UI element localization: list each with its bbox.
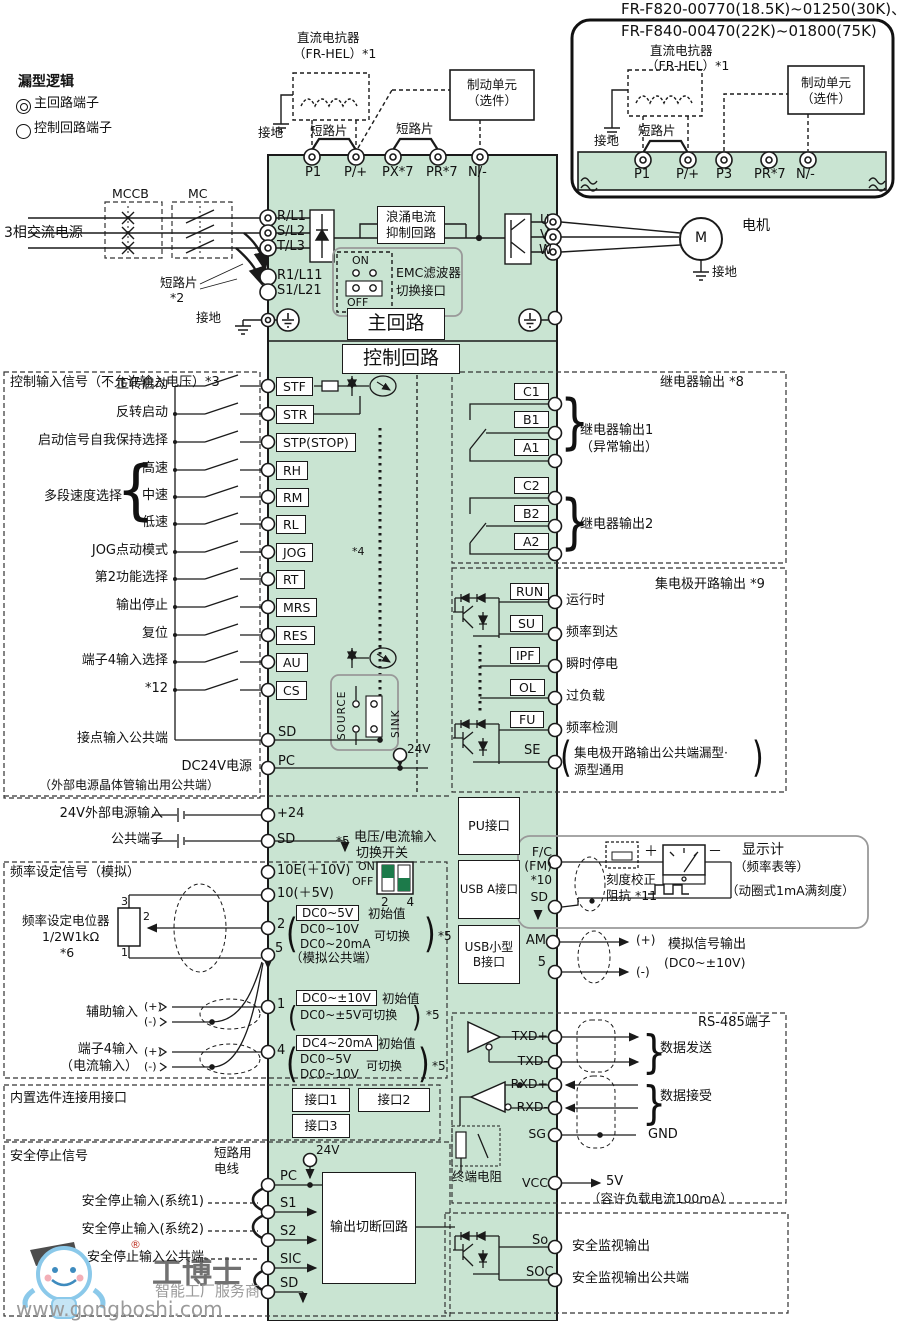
- aux-input-label: 辅助输入: [38, 1006, 138, 1021]
- mccb-label: MCCB: [112, 187, 149, 201]
- sink-label: SINK: [390, 709, 402, 738]
- meter-plus: ＋: [644, 844, 658, 860]
- surge-line1: 浪涌电流: [386, 209, 436, 225]
- inset-terminal-p1: P1: [634, 168, 650, 183]
- se-label-2: 源型通用: [574, 763, 624, 777]
- terminal-t: T/L3: [277, 240, 305, 255]
- oc-label-fu: 频率检测: [566, 722, 618, 737]
- relay2-label: 继电器输出2: [580, 518, 653, 533]
- terminal-box-rm: RM: [276, 488, 309, 507]
- terminal-box-rt: RT: [276, 570, 305, 589]
- signal-label-mrs: 输出停止: [8, 599, 168, 614]
- t2-switchable: 可切换: [374, 930, 410, 944]
- inset-ground-label: 接地: [594, 134, 619, 148]
- inset-terminal-pr: PR*7: [754, 168, 786, 183]
- signal-label-reset: 复位: [8, 627, 168, 642]
- t4-note: *5: [432, 1060, 446, 1074]
- option-port-1-label: 接口1: [305, 1092, 338, 1108]
- switch-label-1: 电压/电流输入: [354, 831, 436, 846]
- t4-range-box: DC4~20mA: [296, 1035, 378, 1051]
- relay1-label: 继电器输出1: [580, 424, 653, 439]
- jumper-label-3: 短路片: [160, 276, 198, 290]
- brake-option: （选件）: [458, 94, 526, 108]
- pu-interface: PU接口: [458, 797, 520, 855]
- analog-common-label: （模拟公共端）: [290, 951, 378, 965]
- terminal-2: 2: [277, 918, 285, 933]
- multispeed-group-label: 多段速度选择: [44, 490, 122, 505]
- relay1-sublabel: （异常输出）: [580, 441, 658, 456]
- display-sublabel: （频率表等）: [734, 860, 809, 874]
- switch-off-label: OFF: [352, 876, 373, 889]
- oc-label-run: 运行时: [566, 594, 605, 609]
- terminal-w: W: [539, 244, 552, 259]
- jumper-label-2: 短路片: [396, 122, 434, 136]
- usb-mini-b-interface: USB小型 B接口: [458, 925, 520, 984]
- reactor-model: （FR-HEL）*1: [293, 47, 376, 61]
- signal-label-term4sel: 端子4输入选择: [8, 654, 168, 669]
- oc-label-su: 频率到达: [566, 626, 618, 641]
- ac-source-label: 3相交流电源: [4, 225, 83, 241]
- inset-circuit: [572, 20, 893, 197]
- se-paren-open: (: [560, 738, 572, 780]
- t2-paren-open: (: [286, 915, 298, 956]
- inset-terminal-p3: P3: [716, 168, 732, 183]
- main-circuit-title-text: 主回路: [367, 312, 424, 336]
- pot-label-2: 1/2W1kΩ: [42, 930, 99, 944]
- jog-note: *4: [352, 546, 365, 559]
- terminal-box-a1: A1: [514, 439, 549, 456]
- jumper-note: *2: [170, 291, 184, 305]
- terminal-sic: SIC: [280, 1253, 301, 1268]
- terminal-plus24: +24: [277, 807, 304, 822]
- inset-model-1: FR-F820-00770(18.5K)~01250(30K)、: [618, 1, 900, 18]
- terminal-box-su: SU: [510, 615, 543, 632]
- t2-paren-close: ): [424, 915, 436, 956]
- terminal-r1: R1/L11: [277, 269, 322, 284]
- brake-label: 制动单元: [458, 78, 526, 92]
- t1-paren-close: ): [412, 1003, 421, 1032]
- terminal-sd: SD: [278, 726, 296, 741]
- terminal-txd-minus: TXD-: [508, 1054, 548, 1068]
- t4-alt2: DC0~10V: [300, 1068, 359, 1082]
- terminal-5b: 5: [526, 956, 546, 971]
- terminal-px: PX*7: [382, 166, 414, 181]
- terminal-pc2: PC: [280, 1170, 297, 1185]
- terminal-box-b1: B1: [514, 411, 549, 428]
- analog-out-label: 模拟信号输出: [668, 938, 746, 953]
- option-header: 内置选件连接用接口: [10, 1092, 127, 1107]
- signal-label-common: 接点输入公共端: [8, 732, 168, 747]
- inset-terminal-n: N/-: [796, 168, 815, 183]
- legend-title: 漏型逻辑: [18, 74, 74, 90]
- terminal-box-a2: A2: [514, 533, 549, 550]
- terminal-5: 5: [275, 942, 283, 957]
- motor-ground-label: 接地: [712, 265, 737, 279]
- oc-label-ipf: 瞬时停电: [566, 658, 618, 673]
- terminal-s2: S2: [280, 1225, 297, 1240]
- control-circuit-title: 控制回路: [342, 344, 460, 374]
- short-wire-label-2: 电线: [214, 1162, 239, 1176]
- safety-24v-label: 24V: [316, 1144, 339, 1158]
- t1-range-box: DC0~±10V: [296, 990, 377, 1006]
- usb-b-label-1: USB小型: [465, 940, 514, 955]
- analog-out-plus: (+): [636, 934, 655, 948]
- terminal-s: S/L2: [277, 225, 305, 240]
- ext-common-label: 公共端子: [28, 833, 163, 848]
- aux-plus: (+): [144, 1001, 162, 1014]
- usb-b-label-2: B接口: [473, 955, 505, 970]
- terminal-v: V: [540, 229, 549, 244]
- calibration-label-2: 阻抗 *11: [606, 889, 657, 903]
- output-shutoff-box: 输出切断回路: [322, 1172, 416, 1284]
- terminal-soc: SOC: [526, 1266, 554, 1281]
- terminal-am: AM: [520, 934, 546, 949]
- option-port-2: 接口2: [358, 1088, 430, 1112]
- calibration-label-1: 刻度校正: [606, 873, 656, 887]
- ground-label-left: 接地: [196, 311, 221, 325]
- t4-alt1: DC0~5V: [300, 1053, 351, 1067]
- terminal-box-run: RUN: [510, 583, 549, 600]
- inset-terminal-p-plus: P/+: [676, 168, 699, 183]
- analog-header: 频率设定信号（模拟）: [10, 866, 140, 881]
- safety-monitor-common-label: 安全监视输出公共端: [572, 1272, 689, 1287]
- terminal-box-cs: CS: [276, 681, 307, 700]
- terminal-sd3: SD: [520, 890, 548, 904]
- inset-reactor-model: （FR-HEL）*1: [646, 59, 729, 73]
- control-terminal-icon: [16, 124, 31, 139]
- terminal-r: R/L1: [277, 210, 306, 225]
- ext-24v-label: 24V外部电源输入: [28, 807, 163, 822]
- source-label: SOURCE: [336, 691, 348, 740]
- aux-minus: (-): [144, 1016, 157, 1029]
- pot-pin1: 1: [121, 947, 128, 960]
- terminal-rxd-minus: RXD-: [508, 1100, 548, 1114]
- v24-label: 24V: [407, 743, 430, 757]
- oc-label-ol: 过负载: [566, 690, 605, 705]
- terminal-box-mrs: MRS: [276, 598, 317, 617]
- dc24-note: （外部电源晶体管输出用公共端）: [0, 779, 258, 793]
- vcc-load-note: （容许负载电流100mA）: [588, 1192, 733, 1206]
- terminal-fm: (FM): [518, 859, 552, 873]
- usb-a-label: USB A接口: [460, 882, 518, 896]
- terminal-s1: S1: [280, 1197, 297, 1212]
- rs485-header: RS-485端子: [698, 1016, 771, 1031]
- legend-control-terminal: 控制回路端子: [34, 122, 112, 137]
- watermark-reg-mark: ®: [130, 1238, 141, 1251]
- pot-label-1: 频率设定电位器: [22, 914, 110, 928]
- watermark-url: www.gongboshi.com: [16, 1297, 223, 1321]
- emc-switch-label: 切换接口: [396, 284, 446, 298]
- output-shutoff-label: 输出切断回路: [330, 1220, 408, 1236]
- pu-interface-label: PU接口: [468, 818, 510, 834]
- emc-filter-label: EMC滤波器: [396, 266, 461, 280]
- terminal-4: 4: [277, 1044, 285, 1059]
- pot-pin2: 2: [143, 911, 150, 924]
- terminal-n: N/-: [468, 166, 487, 181]
- terminal-vcc: VCC: [512, 1176, 548, 1190]
- emc-on-label: ON: [352, 255, 369, 268]
- terminal-10: 10(＋5V): [277, 887, 334, 902]
- inset-brake-option: （选件）: [794, 92, 858, 106]
- terminal-box-c2: C2: [514, 477, 549, 494]
- terminal-p-plus: P/+: [344, 166, 367, 181]
- surge-suppression-box: 浪涌电流 抑制回路: [377, 206, 445, 244]
- terminal-10e: 10E(＋10V): [277, 864, 350, 879]
- control-circuit-title-text: 控制回路: [363, 347, 439, 371]
- terminal-s1: S1/L21: [277, 284, 322, 299]
- t2-note: *5: [438, 930, 452, 944]
- terminal-box-fu: FU: [510, 711, 544, 728]
- multispeed-brace: {: [116, 457, 155, 522]
- motor-label: 电机: [742, 218, 770, 234]
- t2-range-box: DC0~5V: [296, 905, 359, 921]
- signal-label-forward: 正转启动: [8, 378, 168, 393]
- terminal-sg: SG: [518, 1127, 546, 1141]
- reactor-label: 直流电抗器: [297, 31, 360, 45]
- main-circuit-title: 主回路: [347, 308, 445, 340]
- inset-model-2: FR-F840-00470(22K)~01800(75K): [618, 23, 880, 40]
- ground-label-top: 接地: [258, 126, 283, 140]
- display-label: 显示计: [742, 842, 784, 858]
- terminal-pr: PR*7: [426, 166, 458, 181]
- term4-current-label: （电流输入）: [30, 1060, 138, 1075]
- wiring-diagram: 漏型逻辑 主回路端子 控制回路端子 FR-F820-00770(18.5K)~0…: [0, 0, 900, 1321]
- dc24-label: DC24V电源: [130, 760, 252, 775]
- signal-label-jog: JOG点动模式: [8, 544, 168, 559]
- mc-label: MC: [188, 187, 208, 201]
- usb-a-interface: USB A接口: [458, 860, 520, 919]
- terminator-label: 终端电阻: [452, 1170, 502, 1184]
- safety-monitor-out-label: 安全监视输出: [572, 1240, 650, 1255]
- meter-minus: －: [708, 844, 722, 860]
- terminal-box-b2: B2: [514, 505, 549, 522]
- terminal-box-rh: RH: [276, 461, 308, 480]
- t4-init-label: 初始值: [378, 1037, 416, 1051]
- switch-note: *5: [336, 835, 350, 849]
- se-label-1: 集电极开路输出公共端漏型·: [574, 746, 728, 760]
- signal-label-selfhold: 启动信号自我保持选择: [8, 434, 168, 449]
- surge-line2: 抑制回路: [386, 225, 436, 241]
- se-paren-close: ): [752, 738, 764, 780]
- jumper-label-1: 短路片: [310, 124, 348, 138]
- t1-alt: DC0~±5V可切换: [300, 1009, 397, 1023]
- option-port-3: 接口3: [292, 1114, 350, 1138]
- signal-label-reverse: 反转启动: [8, 406, 168, 421]
- data-send-label: 数据发送: [660, 1042, 712, 1057]
- term4-plus: (+): [144, 1046, 162, 1059]
- motor-m: M: [695, 230, 707, 246]
- safety-in1-label: 安全停止输入(系统1): [8, 1195, 204, 1210]
- t4-switchable: 可切换: [366, 1060, 402, 1074]
- signal-label-2nd: 第2功能选择: [8, 571, 168, 586]
- terminal-box-res: RES: [276, 626, 315, 645]
- inset-jumper-label: 短路片: [638, 124, 676, 138]
- t4-paren-close: ): [418, 1045, 430, 1086]
- terminal-u: U: [540, 214, 550, 229]
- terminal-se: SE: [524, 744, 540, 759]
- t1-note: *5: [426, 1009, 440, 1023]
- display-scale-note: （动圈式1mA满刻度）: [726, 884, 855, 898]
- inset-reactor-label: 直流电抗器: [650, 44, 713, 58]
- terminal-1: 1: [277, 998, 285, 1013]
- terminal-txd-plus: TXD+: [508, 1029, 548, 1043]
- terminal-p1: P1: [305, 166, 321, 181]
- t4-paren-open: (: [286, 1045, 298, 1086]
- terminal-box-ipf: IPF: [510, 647, 540, 664]
- option-port-1: 接口1: [292, 1088, 350, 1112]
- pot-note: *6: [60, 946, 74, 960]
- t2-alt2: DC0~20mA: [300, 938, 370, 952]
- safety-header: 安全停止信号: [10, 1150, 88, 1165]
- t1-paren-open: (: [288, 1003, 297, 1032]
- terminal-sd4: SD: [280, 1277, 298, 1292]
- terminal-so: So: [532, 1234, 548, 1249]
- terminal-box-jog: JOG: [276, 543, 313, 562]
- terminal-box-stf: STF: [276, 377, 313, 396]
- terminal-sd2: SD: [277, 833, 295, 848]
- terminal-box-c1: C1: [514, 383, 549, 400]
- option-port-2-label: 接口2: [378, 1092, 411, 1108]
- legend-main-terminal: 主回路端子: [34, 97, 99, 112]
- gnd-label: GND: [648, 1128, 678, 1143]
- option-port-3-label: 接口3: [305, 1118, 338, 1134]
- terminal-box-str: STR: [276, 405, 314, 424]
- analog-out-range: (DC0~±10V): [664, 956, 745, 970]
- switch-on-label: ON: [358, 861, 375, 874]
- fm-note: *10: [518, 874, 552, 888]
- vcc-5v-label: 5V: [606, 1175, 623, 1190]
- relay-header: 继电器输出 *8: [660, 376, 744, 391]
- terminal-pc: PC: [278, 755, 295, 770]
- terminal-box-au: AU: [276, 653, 308, 672]
- short-wire-label-1: 短路用: [214, 1146, 252, 1160]
- main-terminal-icon: [16, 99, 31, 114]
- signal-label-12: *12: [8, 682, 168, 697]
- terminal-rxd-plus: RXD+: [508, 1077, 548, 1091]
- terminal-box-rl: RL: [276, 515, 306, 534]
- term4-minus: (-): [144, 1061, 157, 1074]
- oc-header: 集电极开路输出 *9: [655, 578, 765, 593]
- pot-pin3: 3: [121, 896, 128, 909]
- data-receive-label: 数据接受: [660, 1090, 712, 1105]
- inset-brake-label: 制动单元: [794, 76, 858, 90]
- term4-input-label: 端子4输入: [38, 1043, 138, 1058]
- analog-out-minus: (-): [636, 966, 650, 980]
- terminal-box-ol: OL: [510, 679, 545, 696]
- t2-alt1: DC0~10V: [300, 923, 359, 937]
- t2-init-label: 初始值: [368, 907, 406, 921]
- terminal-box-stp: STP(STOP): [276, 433, 356, 452]
